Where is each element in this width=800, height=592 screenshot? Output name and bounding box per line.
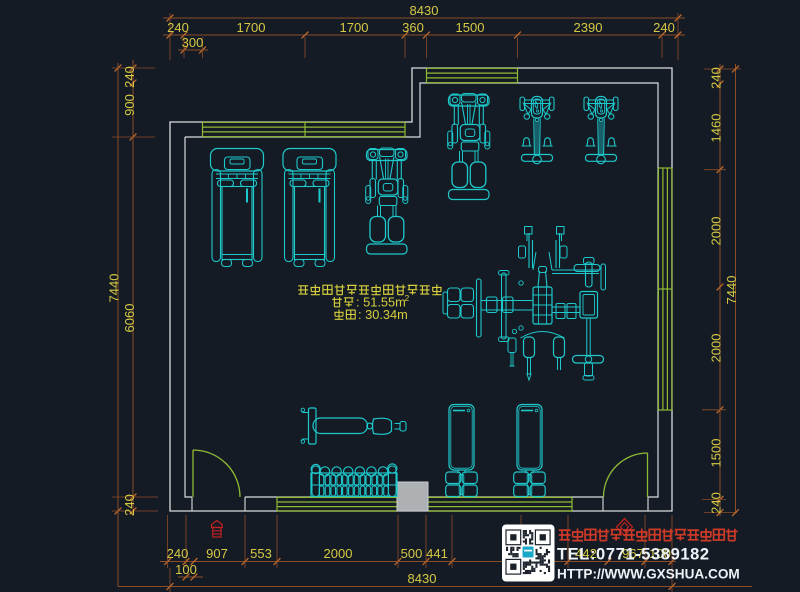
svg-text:1500: 1500 xyxy=(456,20,485,35)
svg-text:240: 240 xyxy=(122,66,137,88)
svg-text:441: 441 xyxy=(426,546,448,561)
svg-text:1460: 1460 xyxy=(709,114,724,143)
svg-text:1700: 1700 xyxy=(340,20,369,35)
svg-text:: 30.34m: : 30.34m xyxy=(358,307,408,322)
svg-text:1500: 1500 xyxy=(709,439,724,468)
svg-text:HTTP://WWW.GXSHUA.COM: HTTP://WWW.GXSHUA.COM xyxy=(557,567,740,582)
svg-text:907: 907 xyxy=(206,546,228,561)
svg-text:240: 240 xyxy=(653,20,675,35)
svg-text:2000: 2000 xyxy=(709,334,724,363)
svg-text:6060: 6060 xyxy=(122,304,137,333)
svg-text:360: 360 xyxy=(402,20,424,35)
svg-text:900: 900 xyxy=(122,94,137,116)
svg-text:240: 240 xyxy=(709,492,724,514)
svg-text:1700: 1700 xyxy=(237,20,266,35)
svg-text:2: 2 xyxy=(405,293,410,303)
svg-text:7440: 7440 xyxy=(724,276,739,305)
svg-text:500: 500 xyxy=(401,546,423,561)
svg-text:300: 300 xyxy=(182,35,204,50)
svg-text:240: 240 xyxy=(167,546,189,561)
svg-text:240: 240 xyxy=(122,494,137,516)
svg-text:553: 553 xyxy=(250,546,272,561)
svg-text:8430: 8430 xyxy=(408,571,437,586)
svg-text:8430: 8430 xyxy=(410,3,439,18)
svg-text:240: 240 xyxy=(167,20,189,35)
svg-text:2000: 2000 xyxy=(709,217,724,246)
svg-text:TEL:0771-5389182: TEL:0771-5389182 xyxy=(557,546,710,564)
svg-text:2000: 2000 xyxy=(324,546,353,561)
svg-text:100: 100 xyxy=(175,562,197,577)
svg-text:7440: 7440 xyxy=(107,274,122,303)
svg-text:2390: 2390 xyxy=(574,20,603,35)
svg-text:240: 240 xyxy=(709,67,724,89)
